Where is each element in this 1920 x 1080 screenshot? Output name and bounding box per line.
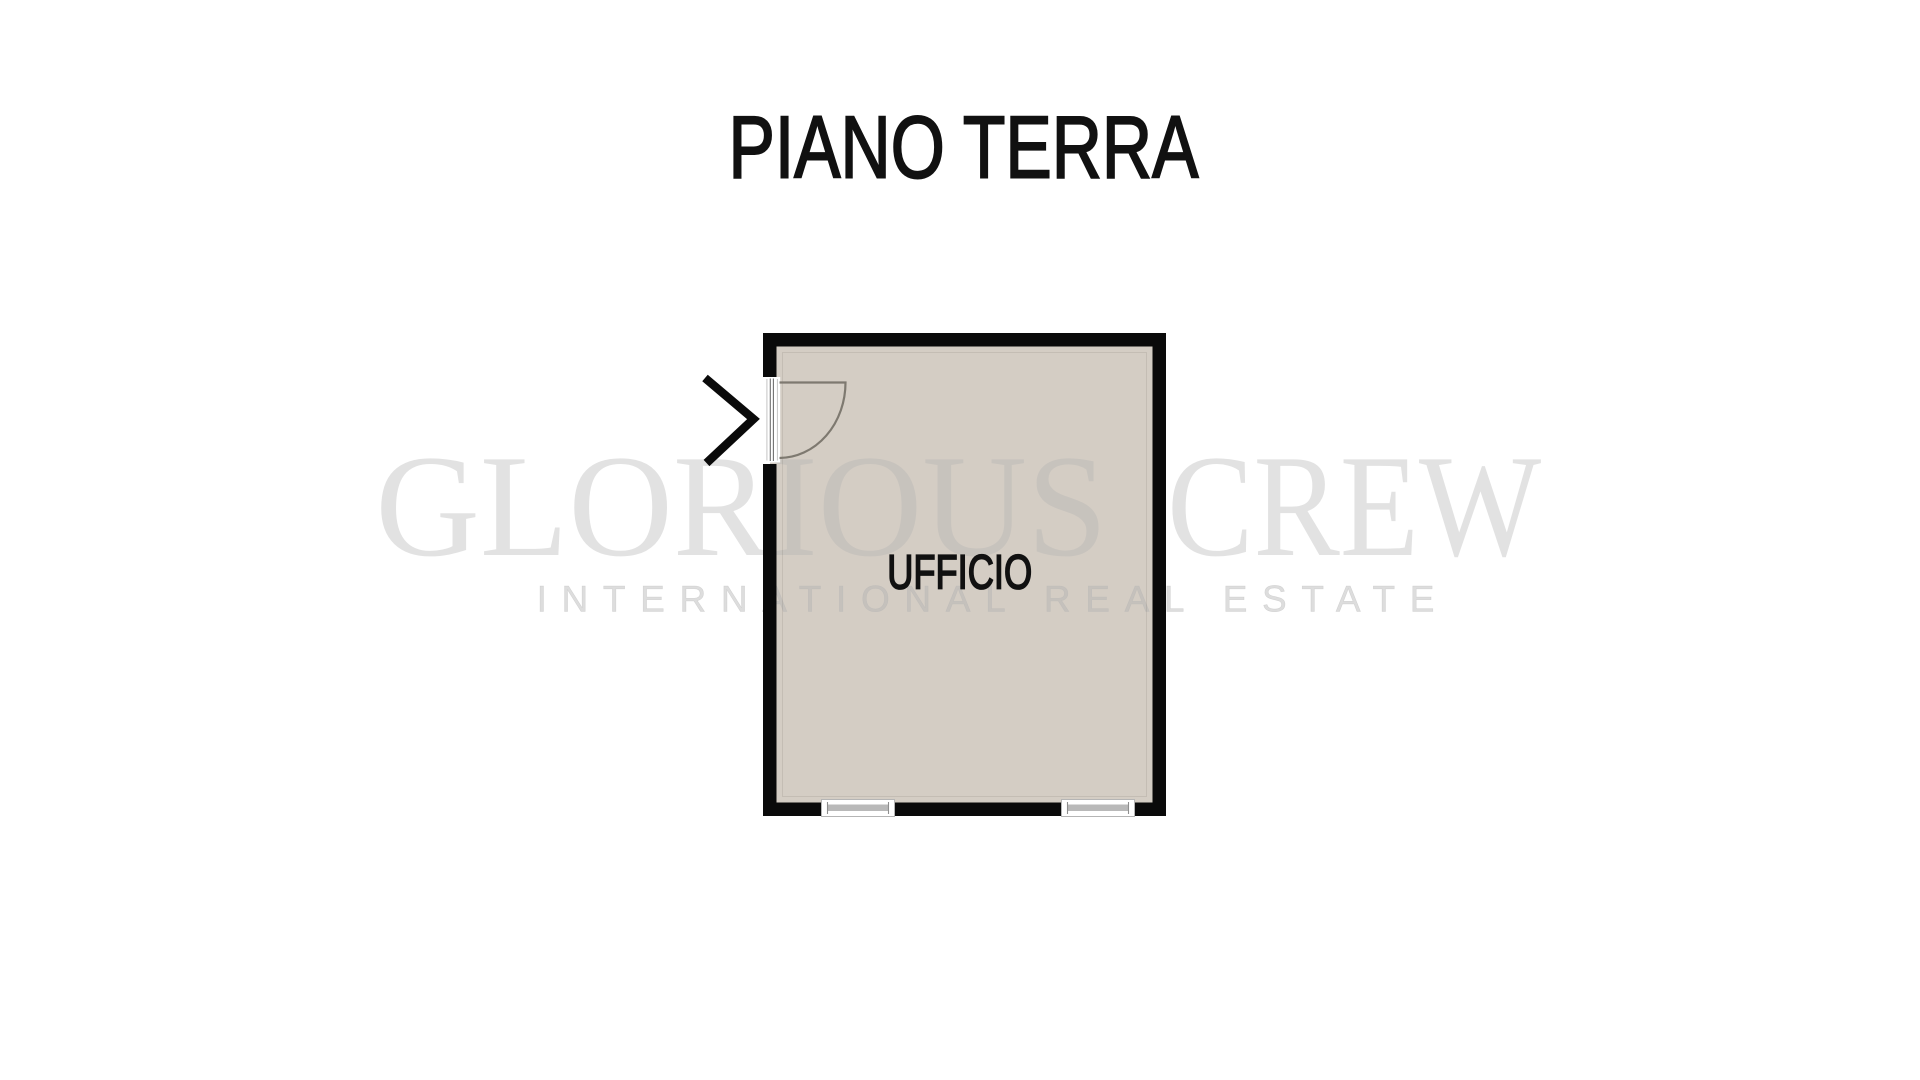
svg-text:CREW: CREW [1167,425,1541,587]
svg-text:UFFICIO: UFFICIO [887,545,1032,599]
svg-text:PIANO TERRA: PIANO TERRA [729,98,1199,197]
